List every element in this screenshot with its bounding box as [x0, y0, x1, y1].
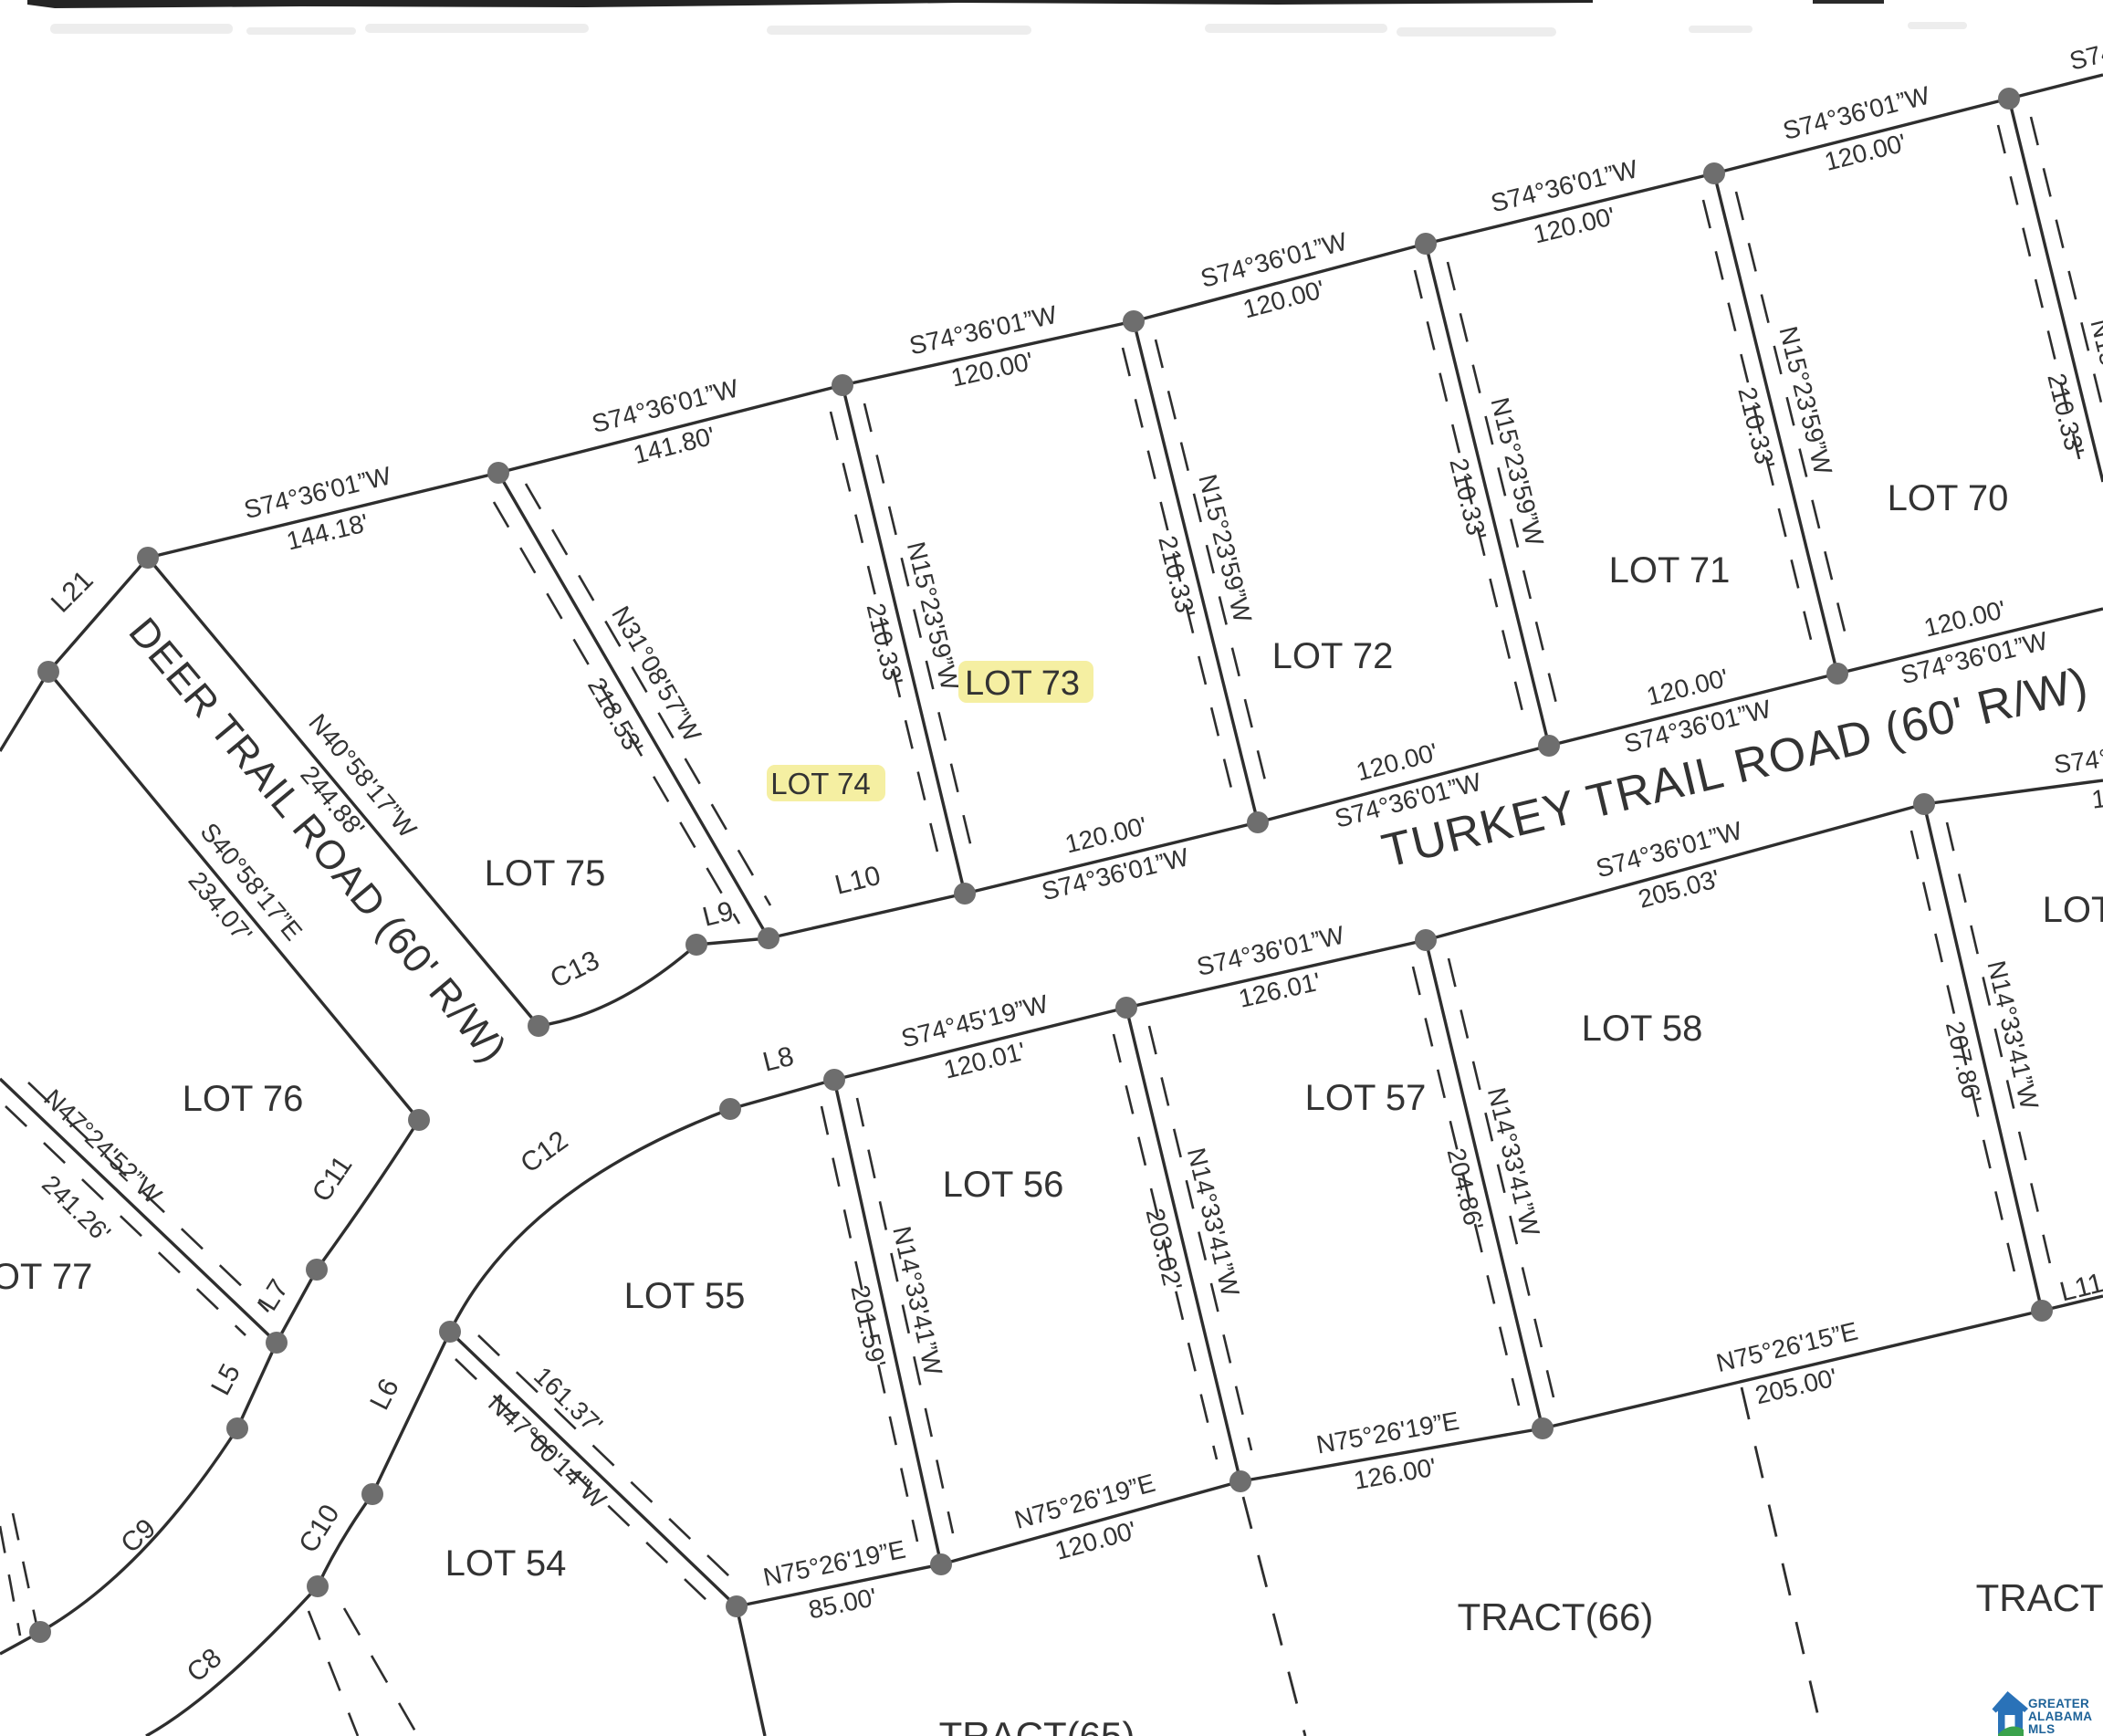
- svg-text:LOT 74: LOT 74: [770, 767, 870, 800]
- svg-text:LOT 73: LOT 73: [965, 664, 1080, 703]
- svg-text:LOT 58: LOT 58: [1582, 1009, 1703, 1049]
- svg-text:LOT 77: LOT 77: [0, 1257, 92, 1297]
- svg-text:LOT 57: LOT 57: [1305, 1078, 1427, 1118]
- svg-text:GREATER: GREATER: [2028, 1697, 2089, 1710]
- svg-text:TRACT(66): TRACT(66): [1458, 1595, 1654, 1638]
- svg-text:TRACT(67): TRACT(67): [1976, 1576, 2103, 1619]
- svg-text:LOT 76: LOT 76: [183, 1079, 304, 1119]
- svg-text:MLS: MLS: [2028, 1722, 2055, 1736]
- svg-text:LOT 70: LOT 70: [1888, 478, 2009, 518]
- svg-text:LOT 54: LOT 54: [445, 1543, 567, 1584]
- svg-text:ALABAMA: ALABAMA: [2028, 1710, 2092, 1723]
- svg-text:LOT 59: LOT 59: [2043, 890, 2103, 930]
- svg-text:LOT 75: LOT 75: [485, 853, 606, 894]
- svg-text:LOT 55: LOT 55: [624, 1276, 746, 1316]
- svg-text:LOT 71: LOT 71: [1609, 550, 1731, 591]
- svg-text:TRACT(65): TRACT(65): [939, 1714, 1135, 1736]
- svg-text:LOT 56: LOT 56: [943, 1165, 1064, 1205]
- svg-text:LOT 72: LOT 72: [1272, 636, 1394, 676]
